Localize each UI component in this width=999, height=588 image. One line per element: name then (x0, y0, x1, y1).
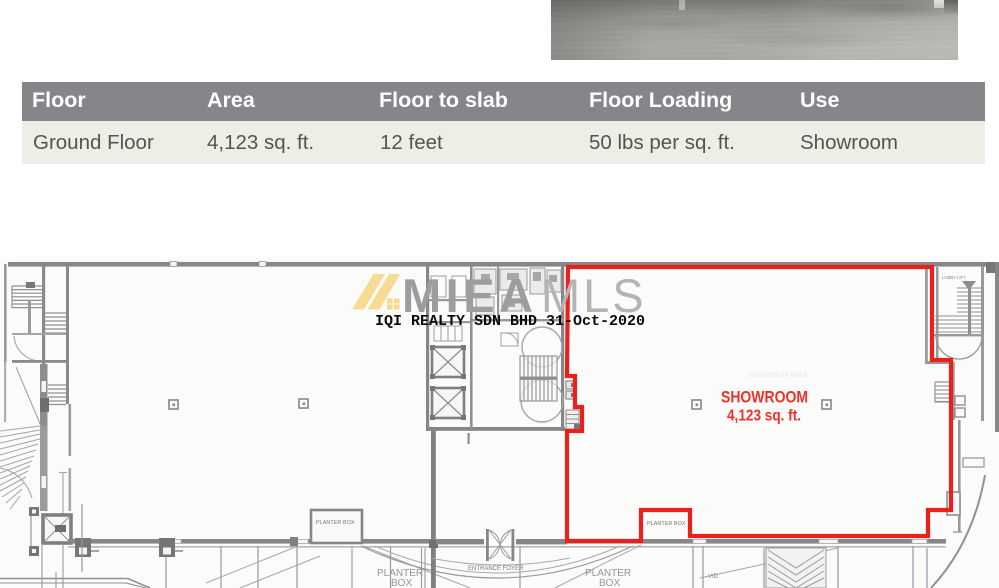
svg-text:VID: VID (708, 574, 719, 580)
svg-text:SHOWROOM AREA: SHOWROOM AREA (748, 372, 808, 379)
svg-text:IQI REALTY SDN BHD 31-Oct-2020: IQI REALTY SDN BHD 31-Oct-2020 (375, 313, 645, 330)
svg-text:BOX: BOX (391, 578, 412, 588)
svg-text:PLANTER BOX: PLANTER BOX (647, 521, 686, 527)
svg-text:ENTRANCE FOYER: ENTRANCE FOYER (468, 566, 524, 572)
svg-text:BOX: BOX (599, 578, 620, 588)
svg-text:LOBBY LIFT: LOBBY LIFT (942, 275, 966, 280)
svg-text:SHOWROOM: SHOWROOM (721, 388, 808, 407)
svg-text:4,123 sq. ft.: 4,123 sq. ft. (727, 408, 801, 425)
svg-text:PLANTER BOX: PLANTER BOX (316, 520, 355, 526)
